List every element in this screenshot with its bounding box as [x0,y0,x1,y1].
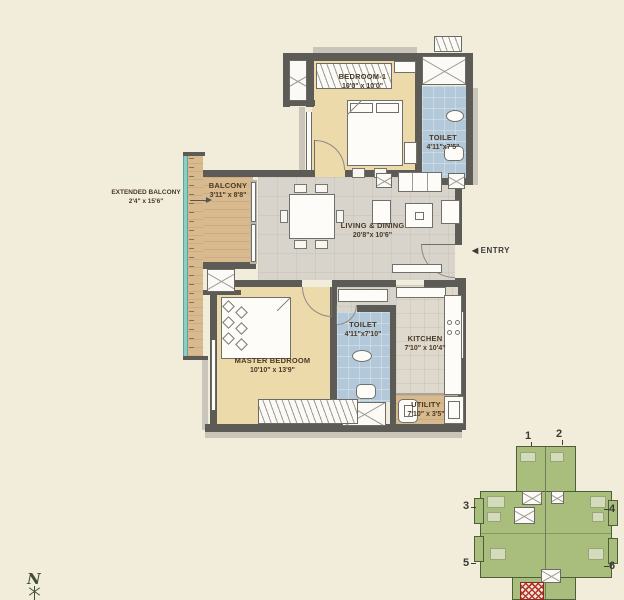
wall [415,53,422,185]
wc-icon [356,384,376,399]
shaft-duct [207,269,235,292]
room-dims: 2'4" x 15'6" [104,198,188,207]
room-name: KITCHEN [396,334,454,344]
label-toilet2: TOILET 4'11"x7'10" [334,320,392,339]
bedroom1-window [306,112,312,170]
master-door-leaf [331,287,332,317]
keyplan-unit-number: 6 [609,560,615,572]
keyplan-unit [588,548,604,560]
keyplan-unit-number: 2 [556,428,562,440]
shaft-duct [422,56,466,85]
wall [183,152,205,156]
room-dims: 4'11"x7'10" [334,330,392,339]
keyplan-unit [550,452,564,462]
room-dims: 10'0" x 10'0" [315,82,410,91]
room-dims: 7'10" x 10'4" [396,344,454,353]
wall [203,262,256,269]
keyplan-axis [481,533,611,534]
keyplan-unit-number: 3 [463,500,469,512]
keyplan-highlighted-unit [520,582,544,600]
balcony-deck-ticks [189,158,194,355]
washbasin-icon [446,110,464,122]
room-name: BALCONY [200,181,256,191]
keyplan-unit-number: 1 [525,430,531,442]
wall [203,170,256,177]
room-name: EXTENDED BALCONY [104,189,188,198]
side-table-icon [448,173,465,189]
sofa-seam [427,173,428,191]
label-toilet1: TOILET 4'11"x7'5" [418,133,468,152]
wall [205,424,462,432]
ledge [473,88,478,185]
keyplan-tick [471,507,476,508]
keyplan-unit [590,496,606,508]
dining-chair-icon [315,240,328,249]
keyplan-lift-icon [541,569,561,583]
keyplan-unit [487,496,505,508]
room-name: UTILITY [398,400,454,410]
shaft-duct [289,60,307,101]
stove-burner-icon [455,330,460,335]
keyplan-unit-number: 5 [463,557,469,569]
callout-arrow-icon [206,197,212,203]
keyplan-tick [531,442,532,446]
keyplan-tick [604,566,609,567]
keyplan-unit-number: 4 [609,503,615,515]
keyplan-lift-icon [551,491,564,504]
armchair-icon [441,200,460,224]
wall [332,280,396,287]
bedroom1-door-leaf [314,140,315,171]
dining-chair-icon [280,210,288,223]
dresser-icon [338,289,388,302]
keyplan-left-bump [474,536,484,562]
keyplan-unit [490,548,506,560]
entry-door-leaf [421,244,455,245]
balcony-glass-railing [183,155,188,358]
room-name: TOILET [334,320,392,330]
wall [253,170,315,177]
wall [306,53,314,107]
dining-chair-icon [294,240,307,249]
keyplan-unit [520,452,536,462]
key-plan: 1 2 3 4 5 6 [460,428,624,600]
dining-chair-icon [315,184,328,193]
label-utility: UTILITY 7'10" x 3'5" [398,400,454,419]
stool-icon [352,168,365,178]
keyplan-lift-icon [522,491,542,505]
pillow-icon [376,103,399,113]
label-kitchen: KITCHEN 7'10" x 10'4" [396,334,454,353]
sofa-icon [398,172,442,192]
sofa-seam [412,173,413,191]
side-table-icon [376,173,392,188]
keyplan-tick [604,509,609,510]
keyplan-left-bump [474,498,484,524]
room-dims: 10'10" x 13'9" [225,366,320,375]
master-bedroom-window [211,340,216,410]
dining-chair-icon [294,184,307,193]
bed-fold [347,100,362,115]
label-extended-balcony: EXTENDED BALCONY 2'4" x 15'6" [104,189,188,207]
tv-unit-icon [392,264,442,273]
keyplan-tick [562,440,563,445]
room-name: BEDROOM-1 [315,72,410,82]
room-dims: 4'11"x7'5" [418,143,468,152]
bedside-table-icon [404,142,417,164]
room-dims: 20'8"x 10'6" [320,231,425,240]
bed-fold [277,297,291,311]
wardrobe-icon [258,399,358,424]
room-name: LIVING & DINING [320,221,425,231]
entry-marker: ◀ ENTRY [472,246,510,255]
keyplan-tick [471,563,476,564]
keyplan-lift-icon [514,507,535,524]
room-dims: 7'10" x 3'5" [398,410,454,419]
kitchen-counter-icon [396,287,446,298]
balcony-slider-panel [251,224,256,262]
label-living-dining: LIVING & DINING 20'8"x 10'6" [320,221,425,240]
ledge [299,107,305,172]
floor-plan-canvas: BEDROOM-1 10'0" x 10'0" TOILET 4'11"x7'5… [0,0,624,600]
duct [434,36,462,52]
washbasin-icon [352,350,372,362]
keyplan-unit [487,512,501,522]
label-master-bedroom: MASTER BEDROOM 10'10" x 13'9" [225,356,320,375]
label-bedroom1: BEDROOM-1 10'0" x 10'0" [315,72,410,91]
ledge [202,358,208,430]
stove-burner-icon [455,320,460,325]
entry-label: ENTRY [481,246,510,255]
duct-dots [342,428,386,430]
coffee-table-inner [415,212,424,220]
stove-burner-icon [447,320,452,325]
keyplan-unit [592,512,604,522]
wall [183,356,208,360]
wall [466,53,473,185]
entry-arrow-icon: ◀ [472,246,479,255]
ledge [205,432,462,438]
room-name: TOILET [418,133,468,143]
room-name: MASTER BEDROOM [225,356,320,366]
